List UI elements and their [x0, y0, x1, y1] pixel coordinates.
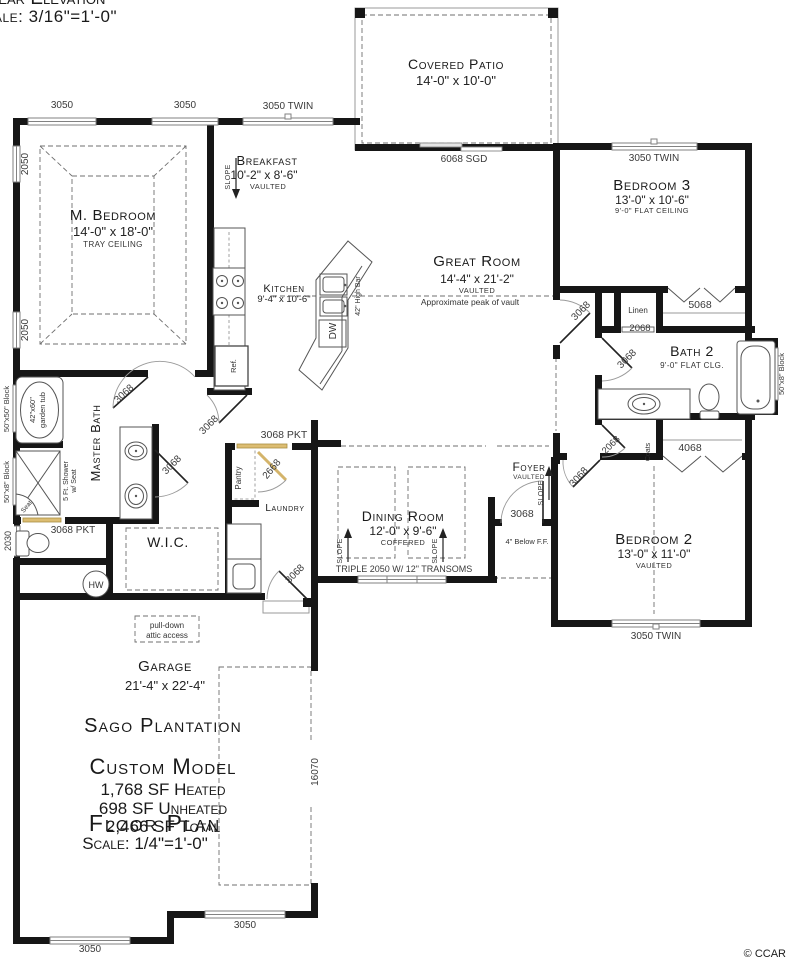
room-dims-great-room: 14'-4" x 21'-2" [440, 272, 514, 286]
room-label-garage: Garage [138, 658, 192, 675]
window-label-shower-block: 50"x8" Block [2, 461, 11, 503]
door-label-laundry-garage: 3068 [283, 562, 307, 586]
pocket-door-hall [235, 443, 292, 450]
room-label-dining: Dining Room [362, 508, 444, 524]
patio-post-right [548, 8, 558, 18]
tub-bath2 [737, 341, 775, 414]
room-dims-garage: 21'-4" x 22'-4" [125, 678, 205, 693]
dryer [227, 559, 261, 593]
room-dims-bedroom3: 13'-0" x 10'-6" [615, 193, 689, 207]
vault-peak-note: Approximate peak of vault [421, 297, 520, 307]
window-label-mbr-2: 3050 [174, 100, 197, 111]
bar-label: 42" High Bar [355, 276, 362, 316]
window-label-tub-block: 50"x50" Block [2, 386, 11, 432]
closet-label-4068: 4068 [678, 442, 702, 454]
door-label-master-pocket: 3068 PKT [51, 525, 95, 536]
room-dims-breakfast: 10'-2" x 8'-6" [230, 168, 297, 182]
window-label-mbr-side-2: 2050 [20, 318, 31, 341]
closet-label-5068: 5068 [688, 299, 712, 311]
room-dims-patio: 14'-0" x 10'-0" [416, 73, 496, 88]
room-label-patio: Covered Patio [408, 56, 504, 72]
closet-label-coats: Coats [645, 442, 652, 461]
heated-sf: 1,768 SF Heated [100, 780, 225, 799]
window-label-bath2-block: 50"x8" Block [777, 353, 786, 395]
door-label-mbr: 3068 [112, 382, 136, 406]
shower-label-1: 5 Ft. Shower [63, 460, 70, 500]
door-label-linen: 2068 [629, 323, 650, 334]
room-note-bath2: 9'-0" Flat Clg. [660, 361, 724, 370]
room-label-breakfast: Breakfast [236, 153, 297, 168]
dishwasher-label: DW [328, 322, 339, 339]
door-label-wic: 3068 [160, 453, 184, 477]
range [213, 268, 245, 315]
room-label-foyer: Foyer [512, 460, 545, 474]
community-name: Sago Plantation [84, 715, 242, 737]
door-label-garage-16070: 16070 [310, 758, 321, 786]
window-label-garage-side: 3050 [234, 920, 257, 931]
porch-floor-note: 4" Below F.F. [505, 537, 548, 546]
patio-post-left [355, 8, 365, 18]
plan-scale: Scale: 1/4"=1'-0" [82, 834, 208, 853]
room-note-breakfast: Vaulted [250, 182, 286, 191]
slope-label-foyer: Slope [538, 480, 545, 505]
window-label-mbr-side-1: 2050 [20, 152, 31, 175]
door-label-bed2: 3068 [568, 465, 591, 489]
room-label-master-bath: Master Bath [88, 404, 103, 481]
closet-label-linen: Linen [628, 306, 648, 315]
room-label-wic: W.I.C. [147, 534, 189, 550]
copyright: © CCAR [744, 948, 786, 960]
opening-header-dashes [341, 357, 556, 446]
room-label-bedroom3: Bedroom 3 [613, 177, 690, 194]
room-dims-kitchen: 9'-4" x 10'-6" [257, 294, 310, 305]
room-label-pantry: Pantry [234, 466, 243, 489]
elevation-scale: Scale: 3/16"=1'-0" [0, 7, 117, 26]
tub-label-2: garden tub [38, 392, 47, 428]
garage-step [263, 601, 309, 613]
tub-label-1: 42"x60" [28, 397, 37, 423]
slope-label-breakfast: Slope [225, 164, 232, 189]
floor-plan-page: Rear Elevation Scale: 3/16"=1'-0" Covere… [0, 0, 788, 960]
window-label-toilet-2030: 2030 [3, 531, 13, 551]
room-note-dining: Coffered [381, 538, 426, 547]
shower-label-2: w/ Seat [71, 469, 78, 493]
door-label-foyer: 3068 [510, 508, 534, 520]
room-label-laundry: Laundry [265, 503, 304, 514]
door-label-bed3: 3068 [569, 299, 593, 323]
room-dims-bedroom2: 13'-0" x 11'-0" [618, 547, 691, 561]
room-note-bedroom3: 9'-0" Flat Ceiling [615, 206, 689, 215]
model-name: Custom Model [89, 754, 236, 779]
fridge-label: Ref. [229, 359, 238, 373]
room-label-bedroom2: Bedroom 2 [615, 531, 692, 548]
room-dims-dining: 12'-0" x 9'-6" [369, 524, 436, 538]
door-label-bath2: 3068 [615, 347, 639, 371]
window-label-bed3: 3050 TWIN [629, 153, 679, 164]
door-label-pantry: 2668 [261, 457, 284, 481]
vanity-master [120, 427, 152, 519]
room-note-bedroom2: Vaulted [636, 561, 672, 570]
window-label-breakfast: 3050 TWIN [263, 101, 313, 112]
attic-label-1: pull-down [150, 621, 184, 630]
window-label-garage-front: 3050 [79, 944, 102, 955]
washer [227, 524, 261, 559]
window-label-mbr-1: 3050 [51, 100, 74, 111]
floor-plan-drawing: Rear Elevation Scale: 3/16"=1'-0" Covere… [0, 0, 788, 960]
room-dims-master-bedroom: 14'-0" x 18'-0" [73, 224, 153, 239]
toilet-bath2 [699, 384, 719, 419]
bifold-bed2-closet [663, 456, 742, 472]
slope-label-dining-1: Slope [337, 538, 344, 563]
pocket-door-master [21, 517, 65, 524]
slope-arrows [232, 158, 553, 562]
window-label-bed2: 3050 TWIN [631, 631, 681, 642]
room-note-great-room: Vaulted [459, 286, 495, 295]
toilet-master [16, 531, 49, 556]
window-label-dining-triple: TRIPLE 2050 W/ 12" TRANSOMS [336, 564, 473, 574]
room-label-master-bedroom: M. Bedroom [70, 207, 156, 224]
vanity-bath2 [598, 389, 690, 419]
door-label-patio-sgd: 6068 SGD [441, 154, 488, 165]
door-label-vestibule: 3068 [197, 413, 221, 437]
attic-label-2: attic access [146, 631, 188, 640]
slope-label-dining-2: Slope [432, 538, 439, 563]
door-label-hall-pocket: 3068 PKT [261, 429, 308, 441]
room-note-master-bedroom: Tray Ceiling [83, 240, 143, 249]
room-label-bath2: Bath 2 [670, 343, 714, 359]
water-heater-label: HW [89, 580, 104, 590]
room-label-great-room: Great Room [433, 253, 520, 270]
room-note-foyer: Vaulted [513, 474, 545, 481]
